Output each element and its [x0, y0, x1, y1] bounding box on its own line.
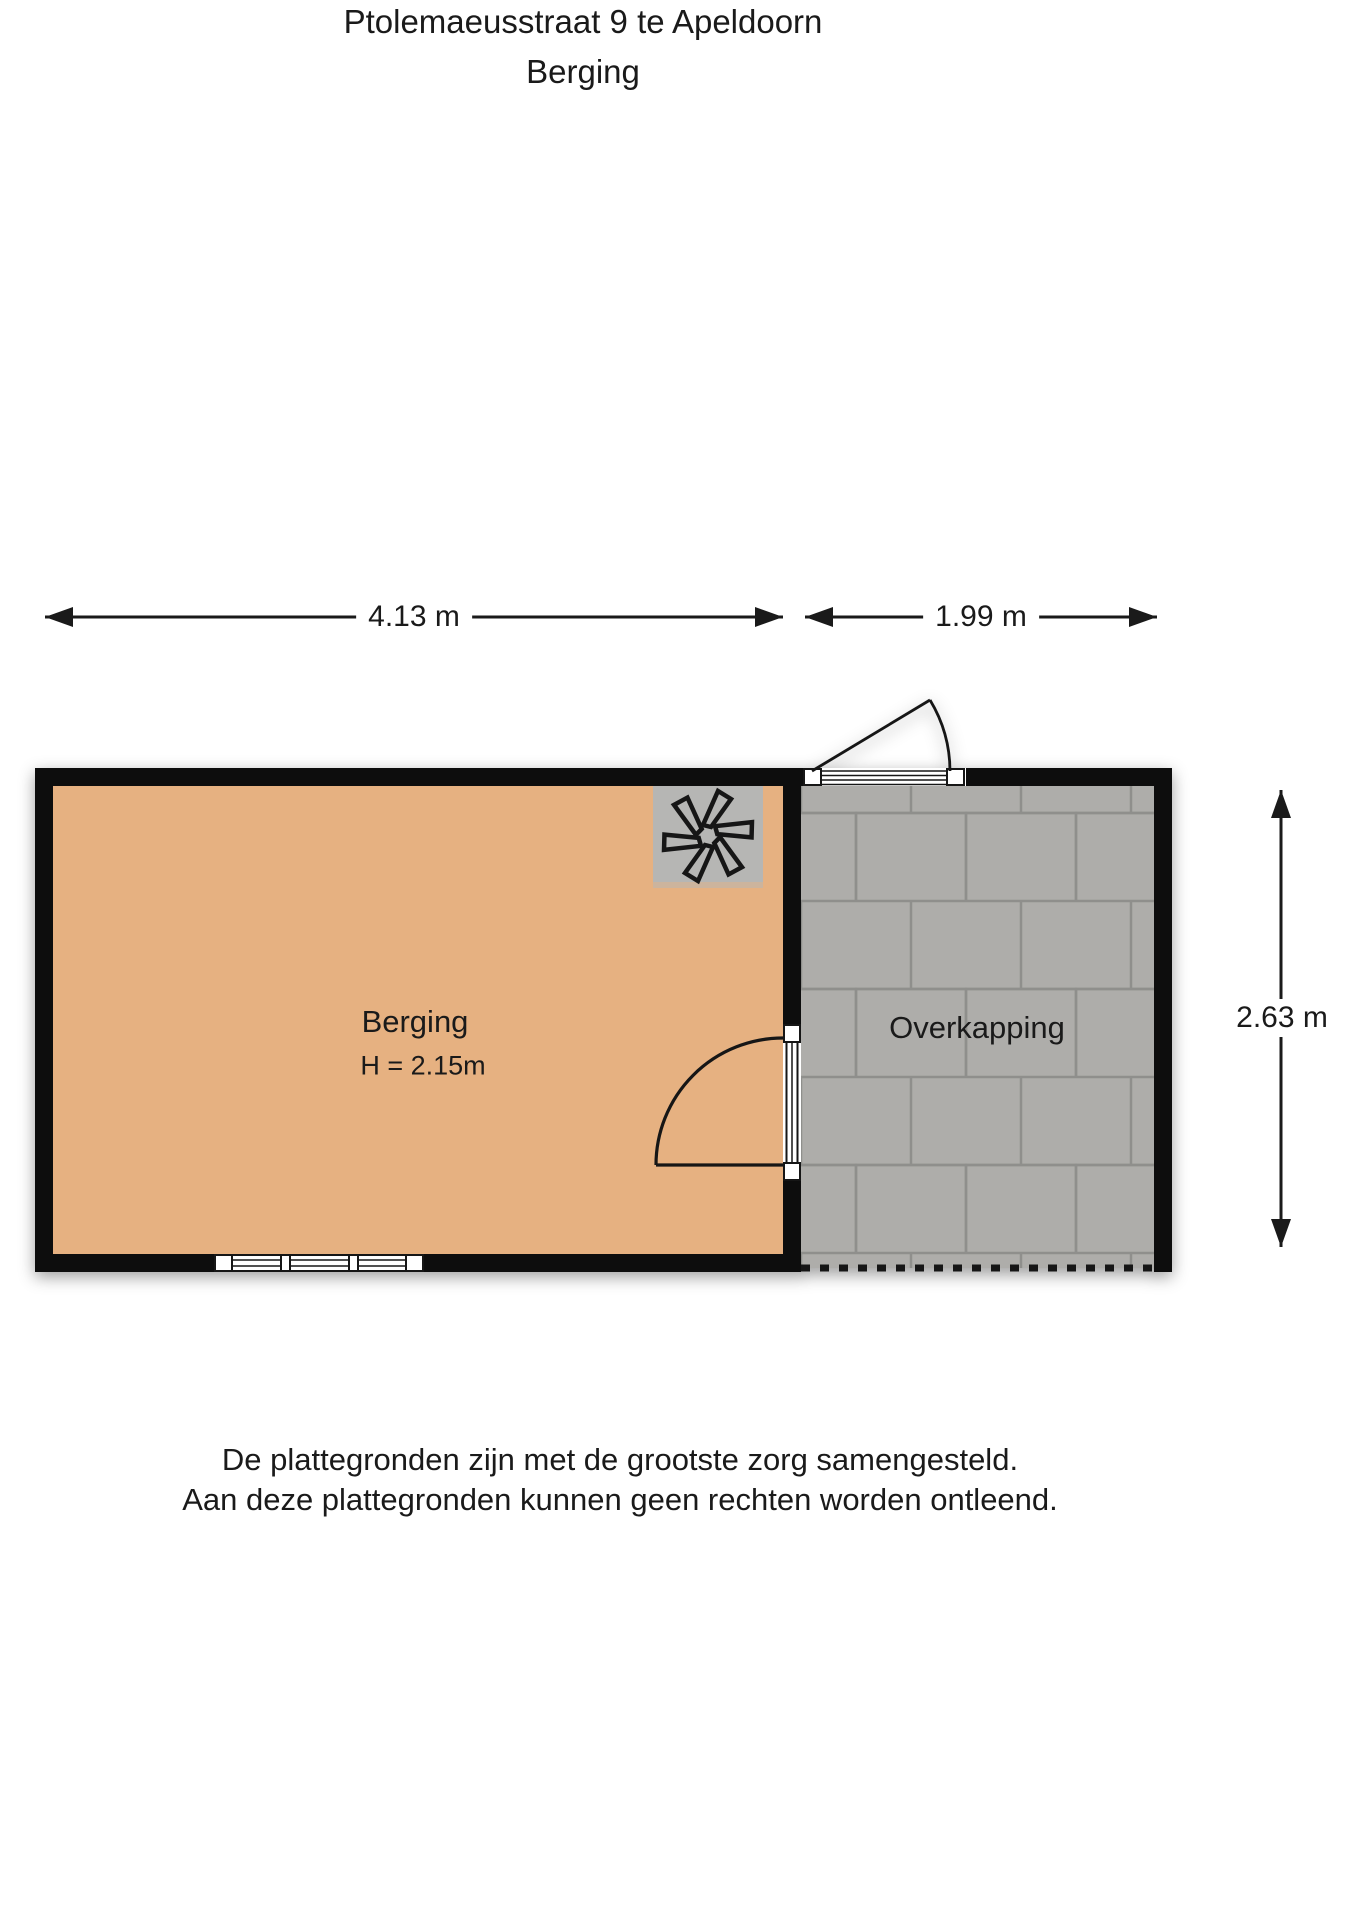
dimension-label-width-berging: 4.13 m: [356, 598, 472, 636]
floorplan-canvas: [0, 0, 1358, 1920]
exterior-door: [804, 700, 966, 786]
room-label-overkapping: Overkapping: [889, 1010, 1065, 1046]
window-symbol: [215, 1255, 423, 1271]
disclaimer-line-1: De plattegronden zijn met de grootste zo…: [0, 1440, 1240, 1480]
disclaimer-line-2: Aan deze plattegronden kunnen geen recht…: [0, 1480, 1240, 1520]
dimension-label-width-overkapping: 1.99 m: [923, 598, 1039, 636]
dimension-label-height: 2.63 m: [1224, 999, 1340, 1037]
disclaimer: De plattegronden zijn met de grootste zo…: [0, 1440, 1240, 1521]
plan-header: Ptolemaeusstraat 9 te Apeldoorn Berging: [0, 0, 1166, 94]
ceiling-height-note: H = 2.15m: [360, 1051, 485, 1082]
room-label-berging: Berging: [362, 1004, 469, 1040]
page-title: Ptolemaeusstraat 9 te Apeldoorn: [0, 0, 1166, 45]
ventilation-fan-icon: [653, 786, 763, 888]
page-subtitle: Berging: [0, 50, 1166, 95]
exterior-door-swing: [812, 700, 950, 771]
